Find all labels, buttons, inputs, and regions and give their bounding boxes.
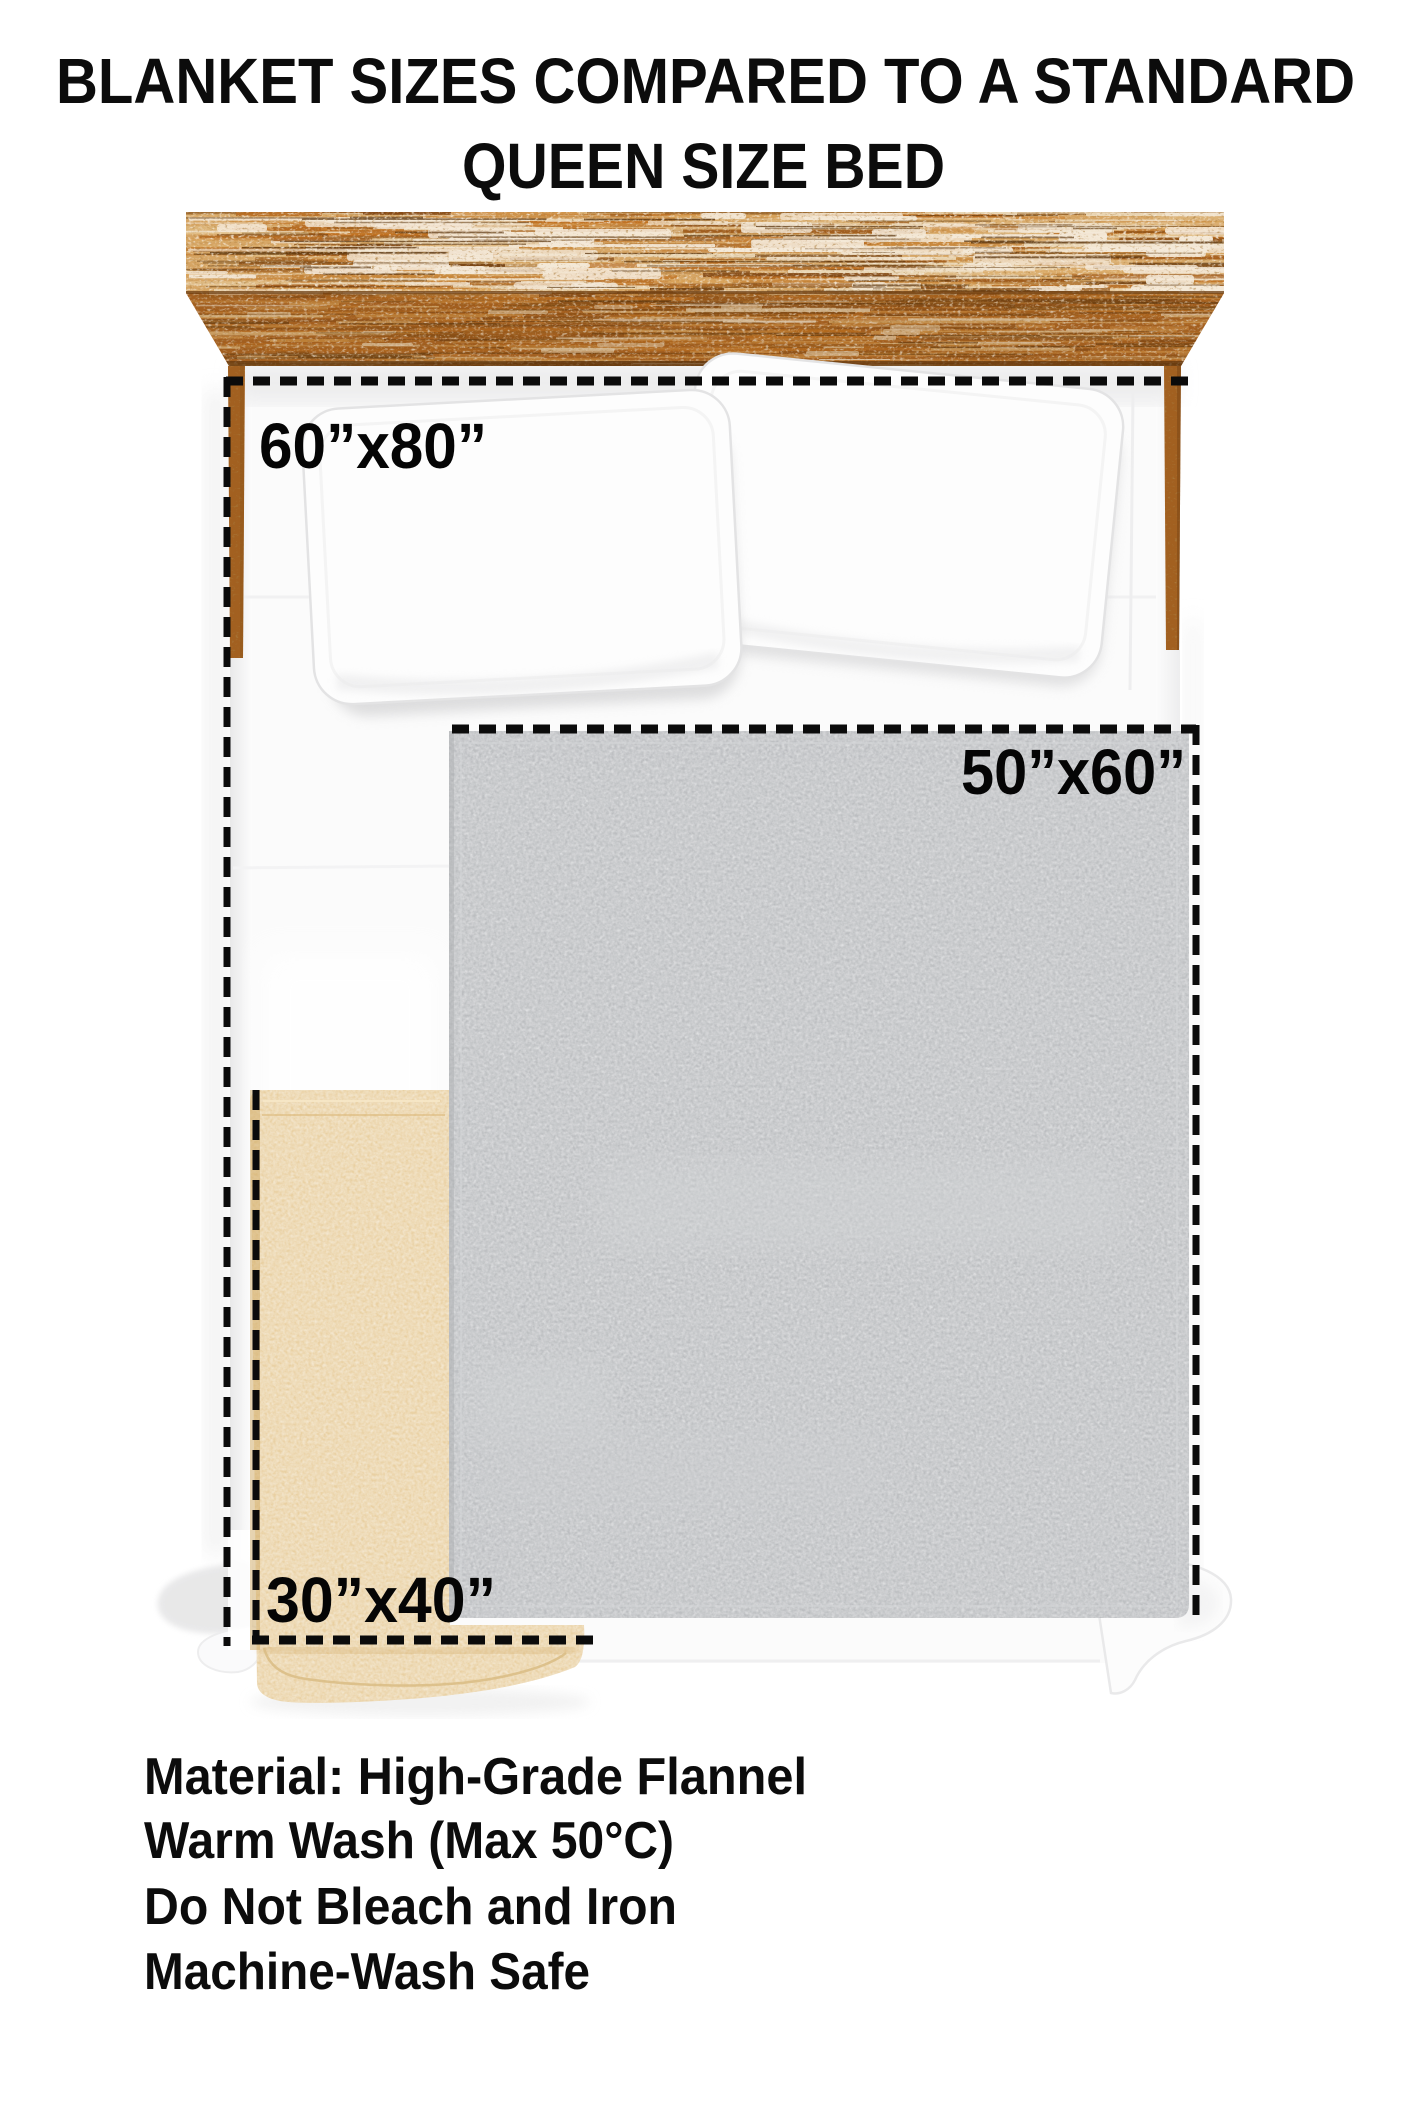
svg-text:Do Not Bleach and Iron: Do Not Bleach and Iron (144, 1878, 677, 1936)
svg-text:Machine-Wash Safe: Machine-Wash Safe (144, 1943, 590, 2001)
svg-text:30”x40”: 30”x40” (266, 1564, 496, 1636)
svg-text:60”x80”: 60”x80” (259, 410, 487, 482)
svg-text:BLANKET SIZES COMPARED TO A ST: BLANKET SIZES COMPARED TO A STANDARD (56, 45, 1355, 117)
svg-text:Material: High-Grade Flannel: Material: High-Grade Flannel (144, 1748, 807, 1806)
svg-text:Warm Wash (Max 50°C): Warm Wash (Max 50°C) (144, 1812, 674, 1870)
svg-text:QUEEN SIZE BED: QUEEN SIZE BED (462, 130, 945, 202)
svg-text:50”x60”: 50”x60” (961, 736, 1186, 808)
